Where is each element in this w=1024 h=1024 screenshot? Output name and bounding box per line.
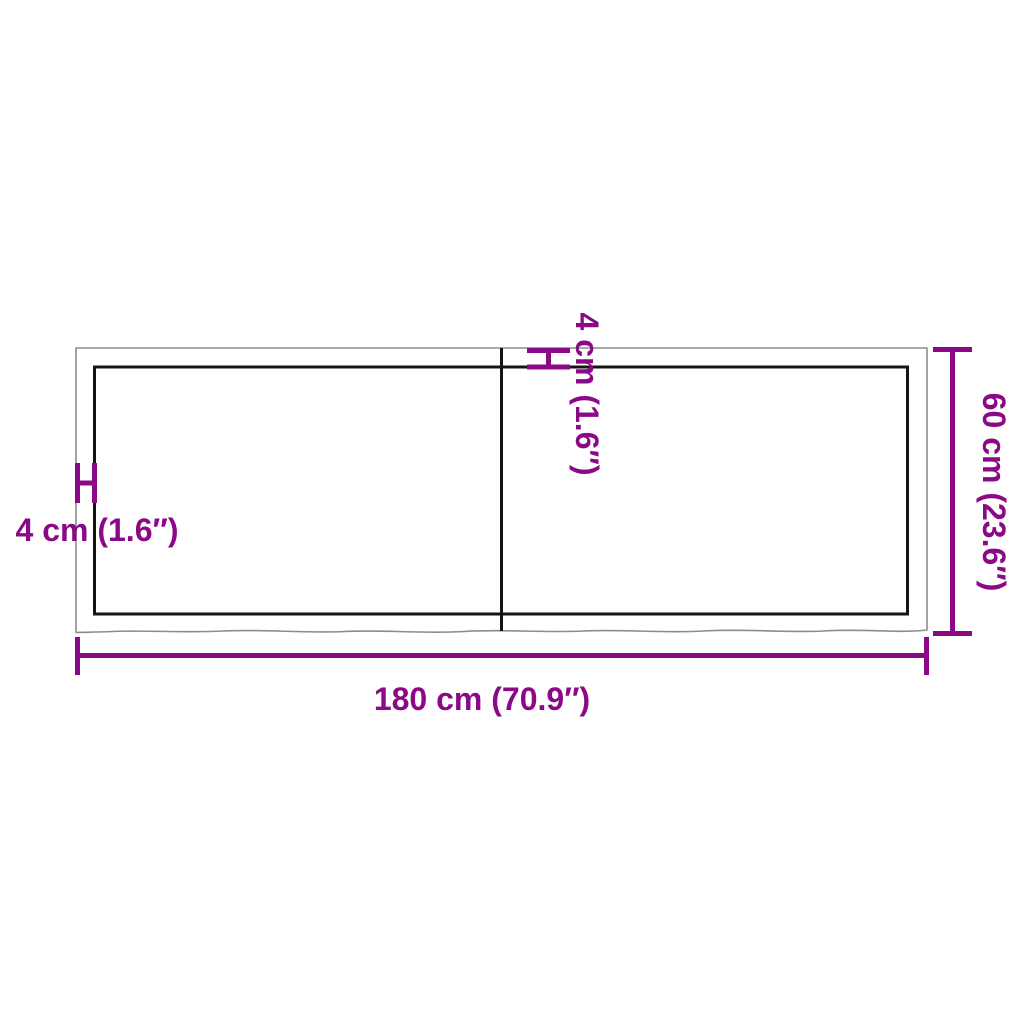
thickness-left-label: 4 cm (1.6″): [16, 512, 179, 548]
thickness-top-label: 4 cm (1.6″): [569, 313, 605, 476]
width-dimension-label: 180 cm (70.9″): [374, 681, 590, 717]
width-dimension: 180 cm (70.9″): [78, 637, 927, 717]
dimension-diagram-page: 180 cm (70.9″) 60 cm (23.6″) 4 cm (1.6″)…: [0, 0, 1024, 1024]
dimension-diagram: 180 cm (70.9″) 60 cm (23.6″) 4 cm (1.6″)…: [0, 0, 1024, 1024]
depth-dimension: 60 cm (23.6″): [933, 350, 1012, 634]
depth-dimension-label: 60 cm (23.6″): [976, 393, 1012, 592]
